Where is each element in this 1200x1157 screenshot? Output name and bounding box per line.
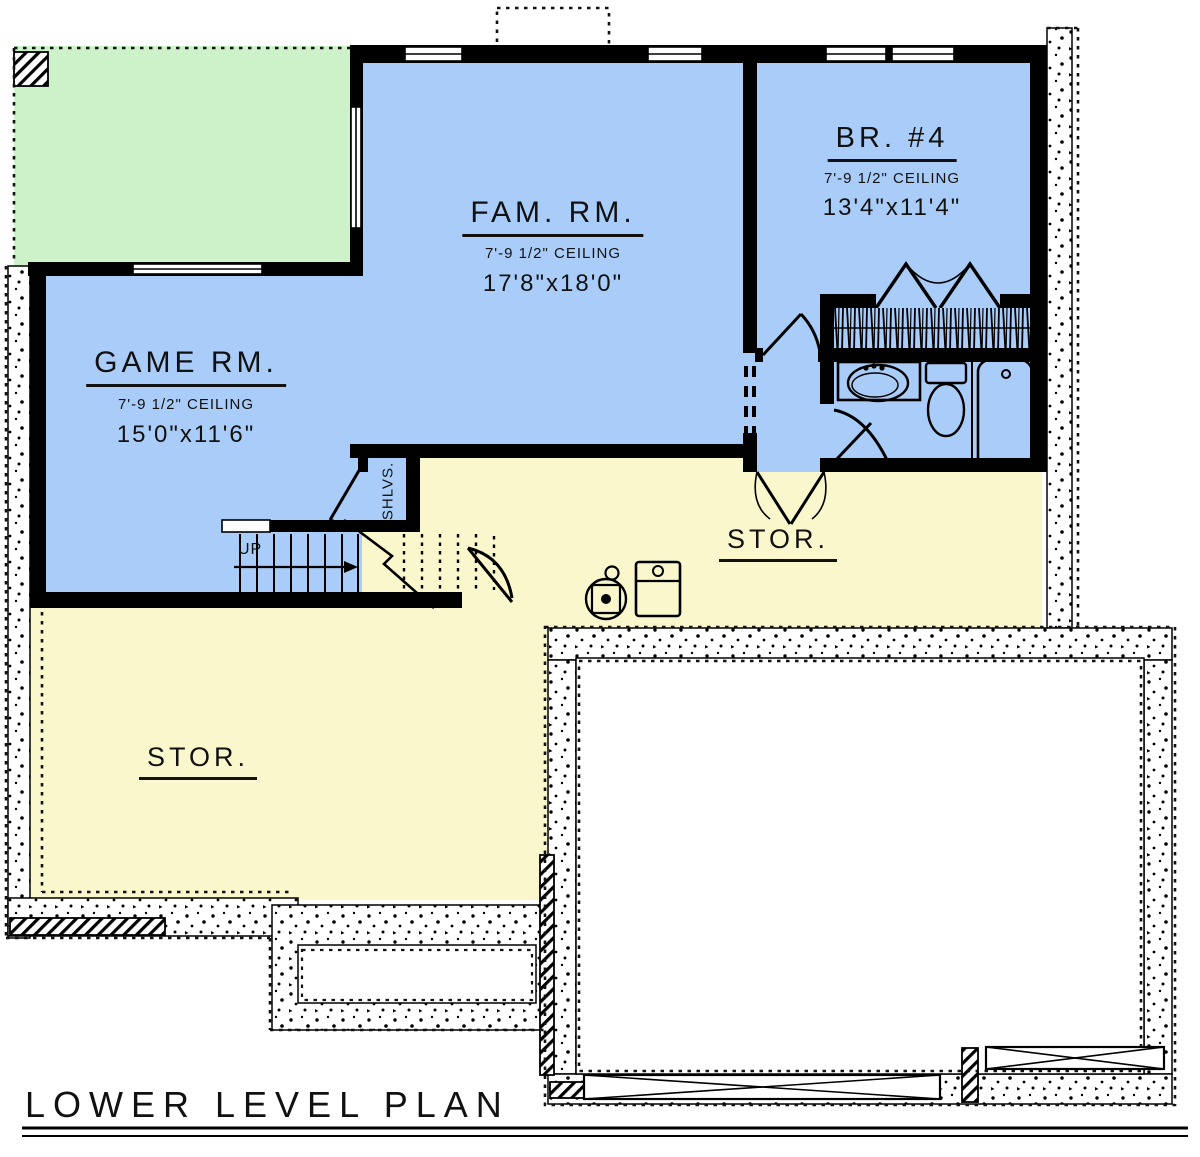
shelves-label: SHLVS.: [380, 462, 397, 520]
family-room-label: FAM. RM.: [462, 196, 643, 230]
storage-center-label: STOR.: [719, 524, 837, 555]
stairs-up-label: UP: [238, 541, 262, 559]
storage-lower-left-label: STOR.: [139, 742, 257, 773]
game-room-dimensions: 15'0"x11'6": [117, 421, 256, 449]
game-room-label: GAME RM.: [86, 346, 286, 380]
floor-plan: FAM. RM. 7'-9 1/2" CEILING 17'8"x18'0" B…: [0, 0, 1200, 1157]
garage-door-bottom: [584, 1075, 940, 1099]
plan-title: LOWER LEVEL PLAN: [25, 1084, 510, 1126]
family-room-dimensions: 17'8"x18'0": [483, 270, 623, 298]
bedroom4-label: BR. #4: [828, 122, 957, 155]
game-room-ceiling: 7'-9 1/2" CEILING: [118, 396, 254, 413]
bedroom4-ceiling: 7'-9 1/2" CEILING: [824, 170, 960, 187]
patio-area: [14, 46, 352, 266]
title-rules: [22, 1128, 1188, 1136]
closet-hangers: [834, 308, 1030, 348]
bedroom4-dimensions: 13'4"x11'4": [823, 194, 962, 222]
garage-door-right: [986, 1047, 1164, 1069]
floor-plan-drawing: [0, 0, 1200, 1157]
family-room-ceiling: 7'-9 1/2" CEILING: [485, 245, 621, 262]
